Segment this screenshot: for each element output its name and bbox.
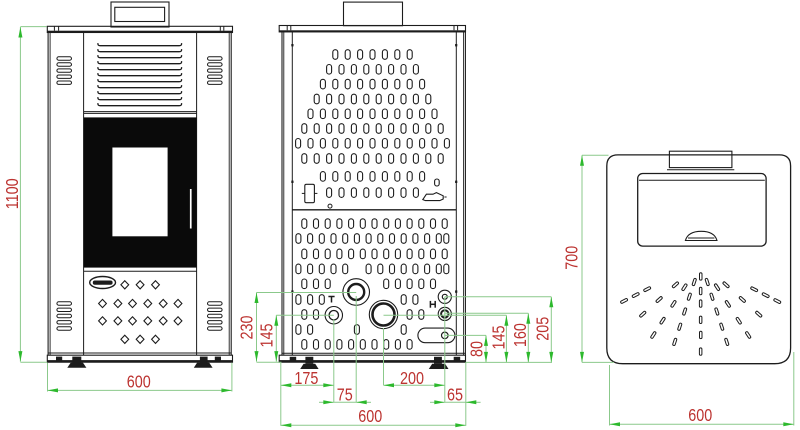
- svg-text:200: 200: [400, 368, 424, 388]
- svg-text:700: 700: [562, 245, 582, 269]
- svg-text:80: 80: [467, 341, 487, 357]
- svg-text:230: 230: [237, 315, 257, 339]
- svg-text:65: 65: [447, 384, 463, 404]
- svg-text:145: 145: [257, 324, 277, 348]
- svg-text:175: 175: [294, 368, 318, 388]
- svg-text:600: 600: [358, 406, 382, 426]
- svg-text:600: 600: [127, 371, 151, 391]
- svg-text:1100: 1100: [2, 178, 22, 209]
- svg-text:160: 160: [510, 323, 530, 347]
- svg-text:205: 205: [533, 317, 553, 341]
- svg-text:600: 600: [688, 405, 712, 425]
- svg-text:145: 145: [488, 326, 508, 350]
- svg-text:75: 75: [337, 384, 353, 404]
